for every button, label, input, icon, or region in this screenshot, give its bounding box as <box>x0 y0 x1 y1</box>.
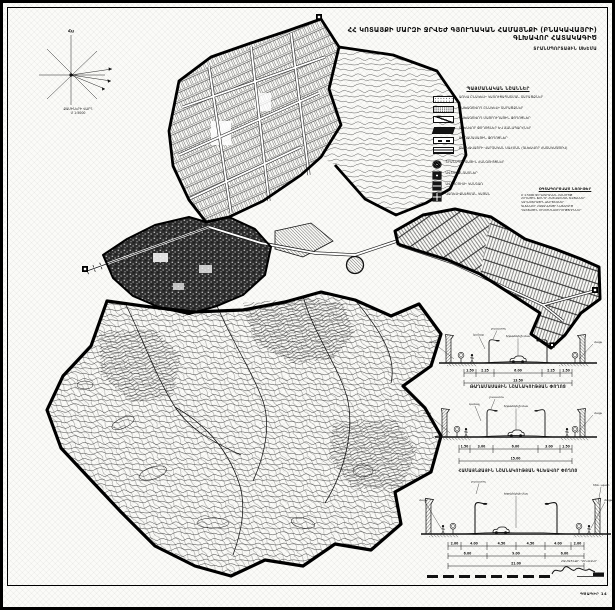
north-label: Հս <box>68 29 74 35</box>
leader-label: հեն. պատ <box>593 483 609 487</box>
leader-label: երթևեկելի մաս <box>504 404 529 408</box>
dim-value: 2.00 <box>574 542 582 546</box>
materials-note: ՕԳՏԱԳՈՐԾՎԱԾ ՆՅՈՒԹԵՐ Մ 1:5000 ՏԵՂԱԳՐԱԿԱՆ … <box>521 187 609 213</box>
leader-label: մայթ <box>419 498 428 502</box>
wind-rose: Հս <box>27 27 115 115</box>
fuel-station-icon <box>433 193 441 201</box>
dim-value: 3.00 <box>545 445 553 449</box>
dash-swatch <box>433 137 454 144</box>
dim-value: 1.50 <box>461 445 469 449</box>
dim-value: 4.00 <box>470 542 478 546</box>
diagonal-line-swatch <box>433 116 454 123</box>
black-bar-swatch <box>432 127 455 134</box>
dim-total: 21.00 <box>511 562 521 566</box>
street-cross-section-1: մայթ կանաչ լուսատու երթևեկելի մաս մայթ 1… <box>427 323 609 387</box>
legend-item: ԳԼԽԱՎՈՐ ՓՈՂՈՑՆԵՐ ԵՎ ՃԱՆԱՊԱՐՀՆԵՐ <box>433 127 609 134</box>
dim-value: 6.00 <box>561 552 569 556</box>
legend-item: ԱՎՏՈԿԱՆԳԱՌՆԵՐ <box>433 172 609 180</box>
dim-value: 6.00 <box>512 445 520 449</box>
leader-label: մայթ <box>604 498 613 502</box>
section-2-caption: ԹԱՂԱՄԱՍԱՅԻՆ ՆՇԱՆԱԿՈՒԹՅԱՆ ՓՈՂՈՑ <box>433 384 603 389</box>
dim-value: 6.00 <box>464 552 472 556</box>
leader-label: կանաչ <box>469 402 481 406</box>
leader-label: կանաչ <box>473 333 485 337</box>
legend-item: ՏՐԱՆՍՊՈՐՏԱՅԻՆ ՀԱՆԳՈՒՅՑՆԵՐ <box>433 161 609 169</box>
leader-label: մայթ <box>423 411 432 415</box>
scale-bar <box>427 575 551 578</box>
dim-total: 15.00 <box>511 457 521 461</box>
leader-label: մայթ <box>594 411 603 415</box>
materials-line: ԴԱՇՏԱՅԻՆ ՈՒՍՈՒՄՆԱՍԻՐՈՒԹՅՈՒՆՆԵՐ <box>521 209 609 213</box>
dim-value: 2.25 <box>481 369 489 373</box>
dim-value: 1.50 <box>466 369 474 373</box>
legend-item: ԹԱՂԱՄԱՍԱՅԻՆ ՓՈՂՈՑՆԵՐ <box>433 137 609 144</box>
leader-label: լուսատու <box>491 327 507 331</box>
wind-rose-caption: ՔԱՄԻՆԵՐԻ ՎԱՐԴ Մ 1:5000 <box>43 107 113 115</box>
dim-value: 9.00 <box>512 552 520 556</box>
materials-header: ՕԳՏԱԳՈՐԾՎԱԾ ՆՅՈՒԹԵՐ <box>521 187 609 191</box>
dim-value: 1.50 <box>562 369 570 373</box>
dim-value: 4.00 <box>554 542 562 546</box>
legend-item: ՆԱԽԱԳԾՎՈՂ ՄԱՅՐՈՒՂԱՅԻՆ ՓՈՂՈՑՆԵՐ <box>433 116 609 123</box>
dim-value: 3.00 <box>478 445 486 449</box>
dim-value: 2.25 <box>547 369 555 373</box>
bus-stop-icon <box>433 182 441 190</box>
masterplan-sheet: Հս ՔԱՄԻՆԵՐԻ ՎԱՐԴ Մ 1:5000 ՀՀ ԿՈՏԱՅՔԻ ՄԱՐ… <box>0 0 615 610</box>
street-cross-section-2: մայթ կանաչ լուսատու երթևեկելի մաս մայթ 1… <box>421 391 611 467</box>
rows-swatch <box>433 147 454 154</box>
sheet-title: ՀՀ ԿՈՏԱՅՔԻ ՄԱՐԶԻ ՋՐՎԵԺ ԳՅՈՒՂԱԿԱՆ ՀԱՄԱՅՆՔ… <box>331 27 597 42</box>
section-3-caption: ՀԱՄԱՅՆՔԱՅԻՆ ՆՇԱՆԱԿՈՒԹՅԱՆ ԳԼԽԱՎՈՐ ՓՈՂՈՑ <box>437 468 599 473</box>
dim-value: 4.50 <box>498 542 506 546</box>
dots-dense-swatch <box>433 106 454 113</box>
leader-label: մայթ <box>429 340 438 344</box>
sheet-number: ԳԾԱԳԻՐ 14 <box>541 591 607 596</box>
leader-label: մայթ <box>594 340 603 344</box>
map-round-feature <box>347 257 364 274</box>
map-zone-settlement <box>103 217 271 314</box>
leader-label: լուսատու <box>489 395 505 399</box>
dim-value: 4.50 <box>527 542 535 546</box>
parking-icon <box>433 172 441 180</box>
dim-value: 6.00 <box>514 369 522 373</box>
sheet-subtitle: ՏՐԱՆՍՊՈՐՏԱՅԻՆ ՍԽԵՄԱ <box>433 46 597 51</box>
dots-light-swatch <box>433 96 454 103</box>
map-zone-terrain <box>47 292 441 576</box>
legend-item: ԱՌԿԱ ԲՆԱԿԵԼԻ ԿԱՌՈՒՑԱՊԱՏՄԱՆ ՏԱՐԱԾՔՆԵՐ <box>433 96 609 103</box>
legend-item: ՆԱԽԱԳԾՎՈՂ ԲՆԱԿԵԼԻ ՏԱՐԱԾՔՆԵՐ <box>433 106 609 113</box>
signature-block: ՀԱՄԱՅՆՔԻ ՂԵԿԱՎԱՐ <box>549 559 609 579</box>
junction-icon <box>433 161 441 169</box>
leader-label: լուսատու <box>471 480 487 484</box>
legend-header: ՊԱՅՄԱՆԱԿԱՆ ՆՇԱՆՆԵՐ <box>433 87 563 92</box>
legend-item: ԲՆԱԿԱՎԱՅՐԻ ՎԱՐՉԱԿԱՆ ՍԱՀՄԱՆ (ԳԼԽԱՎՈՐ ՀԱՏԱ… <box>433 147 609 154</box>
map-zone-north-quarters <box>169 19 341 222</box>
leader-label: երթևեկելի մաս <box>506 334 531 338</box>
signature-icon <box>549 563 607 579</box>
leader-label: երթևեկելի մաս <box>504 492 529 496</box>
dim-value: 1.50 <box>562 445 570 449</box>
dim-value: 2.00 <box>451 542 459 546</box>
dim-total: 13.50 <box>513 379 523 383</box>
